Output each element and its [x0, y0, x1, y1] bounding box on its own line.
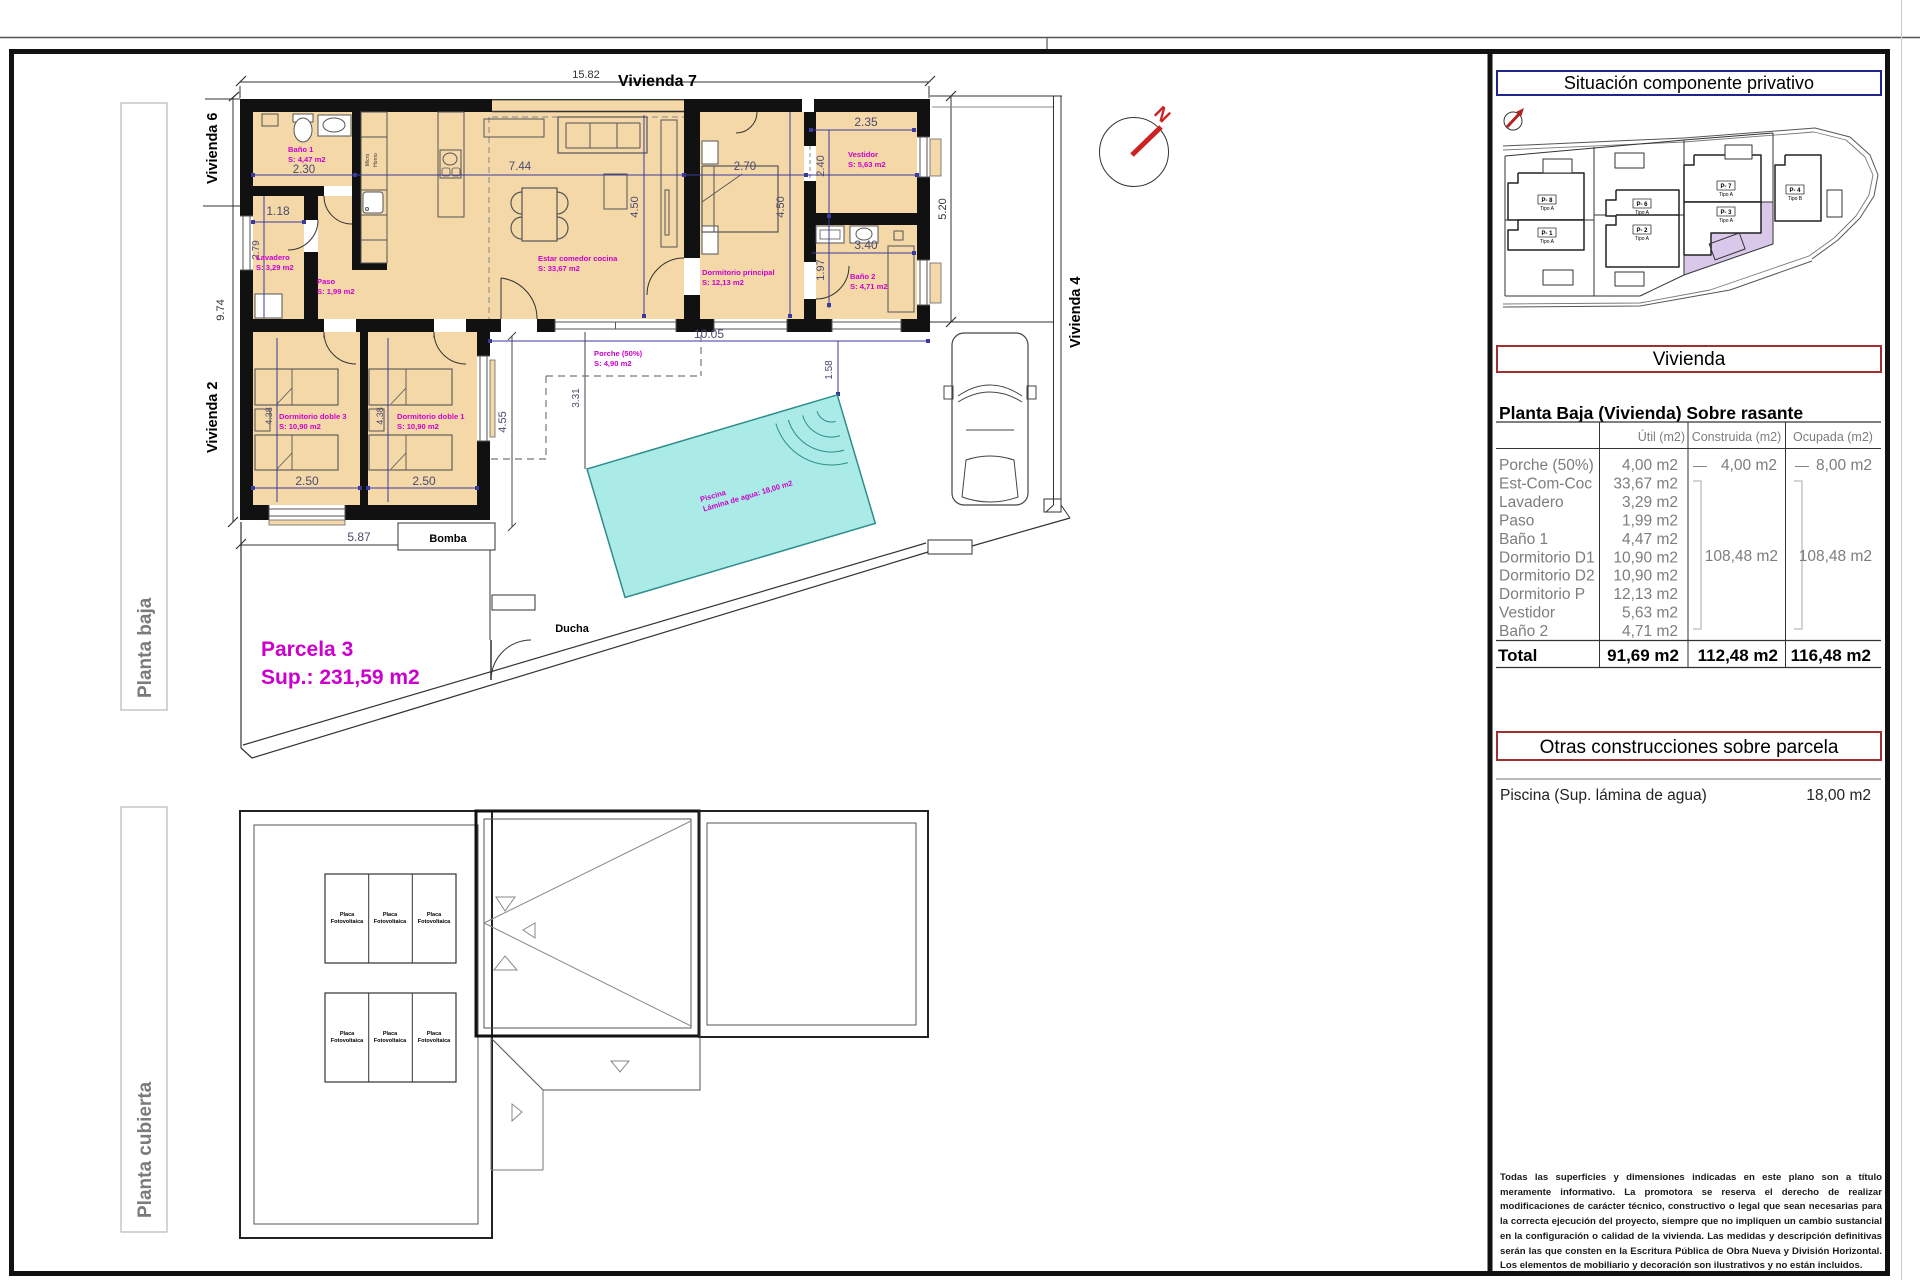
svg-text:Construida (m2): Construida (m2) [1692, 430, 1782, 444]
svg-text:—: — [1693, 457, 1707, 473]
svg-text:8,00 m2: 8,00 m2 [1816, 457, 1872, 474]
svg-text:Paso: Paso [317, 277, 336, 286]
svg-text:S: 4,47 m2: S: 4,47 m2 [288, 155, 326, 164]
svg-text:4.50: 4.50 [775, 196, 787, 217]
svg-text:Horno: Horno [373, 153, 379, 167]
svg-text:S: 33,67 m2: S: 33,67 m2 [538, 264, 580, 273]
svg-text:—: — [1795, 457, 1809, 473]
svg-text:Dormitorio P: Dormitorio P [1499, 586, 1585, 603]
svg-text:Total: Total [1498, 646, 1537, 665]
svg-text:Planta Baja (Vivienda) Sobre r: Planta Baja (Vivienda) Sobre rasante [1499, 403, 1803, 423]
svg-text:P- 8: P- 8 [1541, 198, 1553, 204]
svg-text:Dormitorio D1: Dormitorio D1 [1499, 549, 1595, 566]
svg-text:Placa: Placa [427, 1031, 442, 1037]
svg-text:S: 10,90 m2: S: 10,90 m2 [397, 422, 439, 431]
svg-text:4,00 m2: 4,00 m2 [1622, 457, 1678, 474]
svg-text:Útil (m2): Útil (m2) [1638, 429, 1685, 444]
svg-text:1.18: 1.18 [266, 204, 290, 218]
svg-text:10,90 m2: 10,90 m2 [1613, 568, 1678, 585]
svg-text:Dormitorio doble 1: Dormitorio doble 1 [397, 412, 465, 421]
svg-text:Tipo A: Tipo A [1635, 236, 1650, 242]
svg-text:Fotovoltaica: Fotovoltaica [418, 1038, 451, 1044]
svg-text:3.40: 3.40 [854, 238, 878, 252]
svg-text:4.50: 4.50 [629, 196, 641, 217]
svg-text:Dormitorio doble 3: Dormitorio doble 3 [279, 412, 347, 421]
svg-text:Fotovoltaica: Fotovoltaica [374, 1038, 407, 1044]
svg-text:Placa: Placa [340, 1031, 355, 1037]
svg-text:10,90 m2: 10,90 m2 [1613, 549, 1678, 566]
svg-text:3.31: 3.31 [571, 388, 582, 408]
svg-text:S: 1,99 m2: S: 1,99 m2 [317, 287, 355, 296]
svg-text:Fotovoltaica: Fotovoltaica [374, 919, 407, 925]
svg-text:Placa: Placa [427, 912, 442, 918]
svg-text:Micro: Micro [365, 154, 371, 166]
svg-text:Tipo A: Tipo A [1635, 210, 1650, 216]
svg-text:112,48 m2: 112,48 m2 [1698, 646, 1778, 665]
svg-text:Est-Com-Coc: Est-Com-Coc [1499, 475, 1592, 492]
svg-text:Vestidor: Vestidor [848, 150, 878, 159]
svg-text:3,29 m2: 3,29 m2 [1622, 494, 1678, 511]
svg-text:Baño 1: Baño 1 [1499, 531, 1548, 548]
svg-text:1.58: 1.58 [824, 360, 835, 380]
svg-text:1.97: 1.97 [815, 259, 827, 280]
svg-text:15.82: 15.82 [572, 69, 600, 81]
svg-text:Fotovoltaica: Fotovoltaica [418, 919, 451, 925]
svg-text:Lavadero: Lavadero [1499, 494, 1564, 511]
svg-text:Placa: Placa [383, 1031, 398, 1037]
svg-text:Situación componente privativo: Situación componente privativo [1564, 73, 1814, 93]
svg-text:Tipo A: Tipo A [1540, 206, 1555, 212]
svg-text:4,71 m2: 4,71 m2 [1622, 623, 1678, 640]
svg-text:12,13 m2: 12,13 m2 [1613, 586, 1678, 603]
svg-text:P- 6: P- 6 [1636, 202, 1648, 208]
svg-text:P- 2: P- 2 [1636, 228, 1648, 234]
svg-text:S: 10,90 m2: S: 10,90 m2 [279, 422, 321, 431]
svg-text:4.38: 4.38 [264, 407, 274, 425]
svg-text:Sup.: 231,59 m2: Sup.: 231,59 m2 [261, 666, 420, 689]
svg-text:91,69 m2: 91,69 m2 [1607, 646, 1679, 665]
svg-text:2.35: 2.35 [854, 115, 878, 129]
svg-text:Porche (50%): Porche (50%) [1499, 457, 1594, 474]
svg-text:4,00 m2: 4,00 m2 [1721, 457, 1777, 474]
svg-text:Vivienda 7: Vivienda 7 [618, 73, 697, 90]
svg-text:Lavadero: Lavadero [256, 253, 290, 262]
svg-text:Fotovoltaica: Fotovoltaica [331, 1038, 364, 1044]
svg-text:Vivienda 6: Vivienda 6 [205, 113, 221, 184]
svg-text:18,00 m2: 18,00 m2 [1806, 787, 1871, 804]
svg-text:Ducha: Ducha [555, 623, 590, 635]
svg-text:Estar comedor cocina: Estar comedor cocina [538, 254, 618, 263]
svg-text:S: 5,63 m2: S: 5,63 m2 [848, 160, 886, 169]
svg-text:S: 12,13 m2: S: 12,13 m2 [702, 278, 744, 287]
svg-text:Porche (50%): Porche (50%) [594, 349, 643, 358]
svg-text:108,48 m2: 108,48 m2 [1799, 548, 1872, 565]
svg-text:P- 3: P- 3 [1720, 210, 1732, 216]
svg-text:2.50: 2.50 [412, 474, 436, 488]
svg-text:33,67 m2: 33,67 m2 [1613, 475, 1678, 492]
svg-text:Piscina (Sup. lámina de agua): Piscina (Sup. lámina de agua) [1500, 787, 1707, 804]
svg-text:Vivienda: Vivienda [1653, 349, 1726, 370]
svg-text:Dormitorio principal: Dormitorio principal [702, 268, 775, 277]
svg-text:S: 3,29 m2: S: 3,29 m2 [256, 263, 294, 272]
svg-text:2.40: 2.40 [815, 155, 827, 176]
svg-text:7.44: 7.44 [509, 161, 532, 173]
svg-text:10.05: 10.05 [694, 327, 724, 341]
svg-text:Tipo A: Tipo A [1540, 239, 1555, 245]
svg-text:Placa: Placa [340, 912, 355, 918]
svg-text:Vestidor: Vestidor [1499, 605, 1555, 622]
svg-text:Baño 1: Baño 1 [288, 145, 314, 154]
svg-text:Vivienda 4: Vivienda 4 [1068, 277, 1084, 348]
svg-text:Fotovoltaica: Fotovoltaica [331, 919, 364, 925]
svg-text:9.74: 9.74 [215, 299, 227, 320]
svg-text:4.38: 4.38 [375, 407, 385, 425]
svg-text:S: 4,71 m2: S: 4,71 m2 [850, 282, 888, 291]
svg-text:4,47 m2: 4,47 m2 [1622, 531, 1678, 548]
svg-text:Otras construcciones sobre par: Otras construcciones sobre parcela [1540, 737, 1839, 758]
svg-text:Baño 2: Baño 2 [1499, 623, 1548, 640]
svg-text:108,48 m2: 108,48 m2 [1705, 548, 1778, 565]
svg-text:5,63 m2: 5,63 m2 [1622, 605, 1678, 622]
svg-text:Bomba: Bomba [429, 533, 467, 545]
svg-text:2.70: 2.70 [734, 161, 756, 173]
svg-text:2.30: 2.30 [293, 164, 315, 176]
svg-text:Paso: Paso [1499, 512, 1534, 529]
svg-text:Planta baja: Planta baja [135, 597, 156, 698]
svg-text:Placa: Placa [383, 912, 398, 918]
svg-text:5.20: 5.20 [937, 198, 949, 219]
svg-text:Baño 2: Baño 2 [850, 272, 875, 281]
svg-text:Vivienda 2: Vivienda 2 [205, 382, 221, 453]
svg-text:1,99 m2: 1,99 m2 [1622, 512, 1678, 529]
svg-text:5.87: 5.87 [347, 530, 371, 544]
svg-text:4.55: 4.55 [497, 411, 509, 432]
svg-text:Planta cubierta: Planta cubierta [135, 1081, 156, 1218]
svg-text:P- 7: P- 7 [1720, 184, 1732, 190]
svg-text:Dormitorio D2: Dormitorio D2 [1499, 568, 1595, 585]
svg-text:P- 4: P- 4 [1789, 188, 1801, 194]
svg-text:Tipo A: Tipo A [1719, 192, 1734, 198]
svg-text:S: 4,90 m2: S: 4,90 m2 [594, 359, 632, 368]
svg-text:Ocupada (m2): Ocupada (m2) [1793, 430, 1873, 444]
svg-text:116,48 m2: 116,48 m2 [1791, 646, 1871, 665]
svg-text:Tipo A: Tipo A [1719, 218, 1734, 224]
svg-text:Parcela 3: Parcela 3 [261, 638, 353, 661]
svg-text:Tipo B: Tipo B [1788, 196, 1803, 202]
svg-text:P- 1: P- 1 [1541, 231, 1553, 237]
svg-text:2.50: 2.50 [295, 474, 319, 488]
